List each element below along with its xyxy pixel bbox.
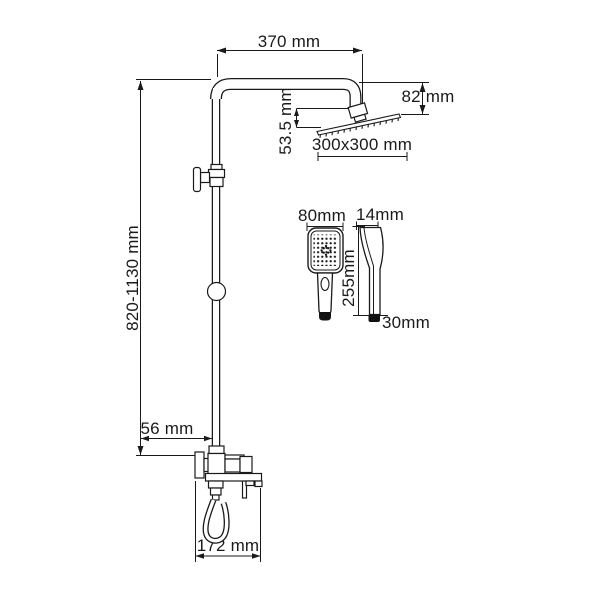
dim-label-handshower-depth: 14mm xyxy=(356,205,404,224)
dim-label-handshower-bottom: 30mm xyxy=(382,313,430,332)
mixer-cartridge xyxy=(225,459,240,472)
aerator xyxy=(246,481,254,486)
dimension-labels: 370 mm 82 mm 53.5 mm 300x300 mm 820-1130… xyxy=(123,32,454,555)
hand-shower-side-profile xyxy=(360,228,383,315)
dim-label-column-height: 820-1130 mm xyxy=(123,225,142,331)
hose-connector xyxy=(211,488,222,495)
hand-shower-side-bottom-cap xyxy=(369,315,381,323)
bath-spout xyxy=(206,474,262,482)
dim-label-head-size: 300x300 mm xyxy=(312,135,412,154)
spray-nozzles xyxy=(314,235,339,267)
hand-shower-bottom-cap xyxy=(319,312,331,321)
mixer-handle xyxy=(240,457,252,473)
dim-label-wall-offset: 56 mm xyxy=(141,419,194,438)
dim-label-head-offset: 82 mm xyxy=(402,87,455,106)
bracket-knob xyxy=(194,168,201,192)
spout-end-cap xyxy=(255,481,262,487)
mixer-assembly xyxy=(195,446,262,500)
hand-shower-side-view xyxy=(360,228,383,323)
bracket-link xyxy=(201,173,210,183)
dim-label-head-drop: 53.5 mm xyxy=(276,87,295,155)
diverter-ring xyxy=(208,283,226,301)
hose-nut xyxy=(209,481,224,488)
hose-connector-small xyxy=(213,495,220,500)
shower-system-technical-drawing: 370 mm 82 mm 53.5 mm 300x300 mm 820-1130… xyxy=(0,0,600,600)
wall-flange xyxy=(195,452,204,478)
dim-label-handshower-width: 80mm xyxy=(298,206,346,225)
hand-shower-front-view xyxy=(308,228,343,321)
mixer-top-nut xyxy=(209,446,224,454)
dim-label-top-width: 370 mm xyxy=(258,32,321,51)
hand-shower-mode-button xyxy=(321,278,329,291)
